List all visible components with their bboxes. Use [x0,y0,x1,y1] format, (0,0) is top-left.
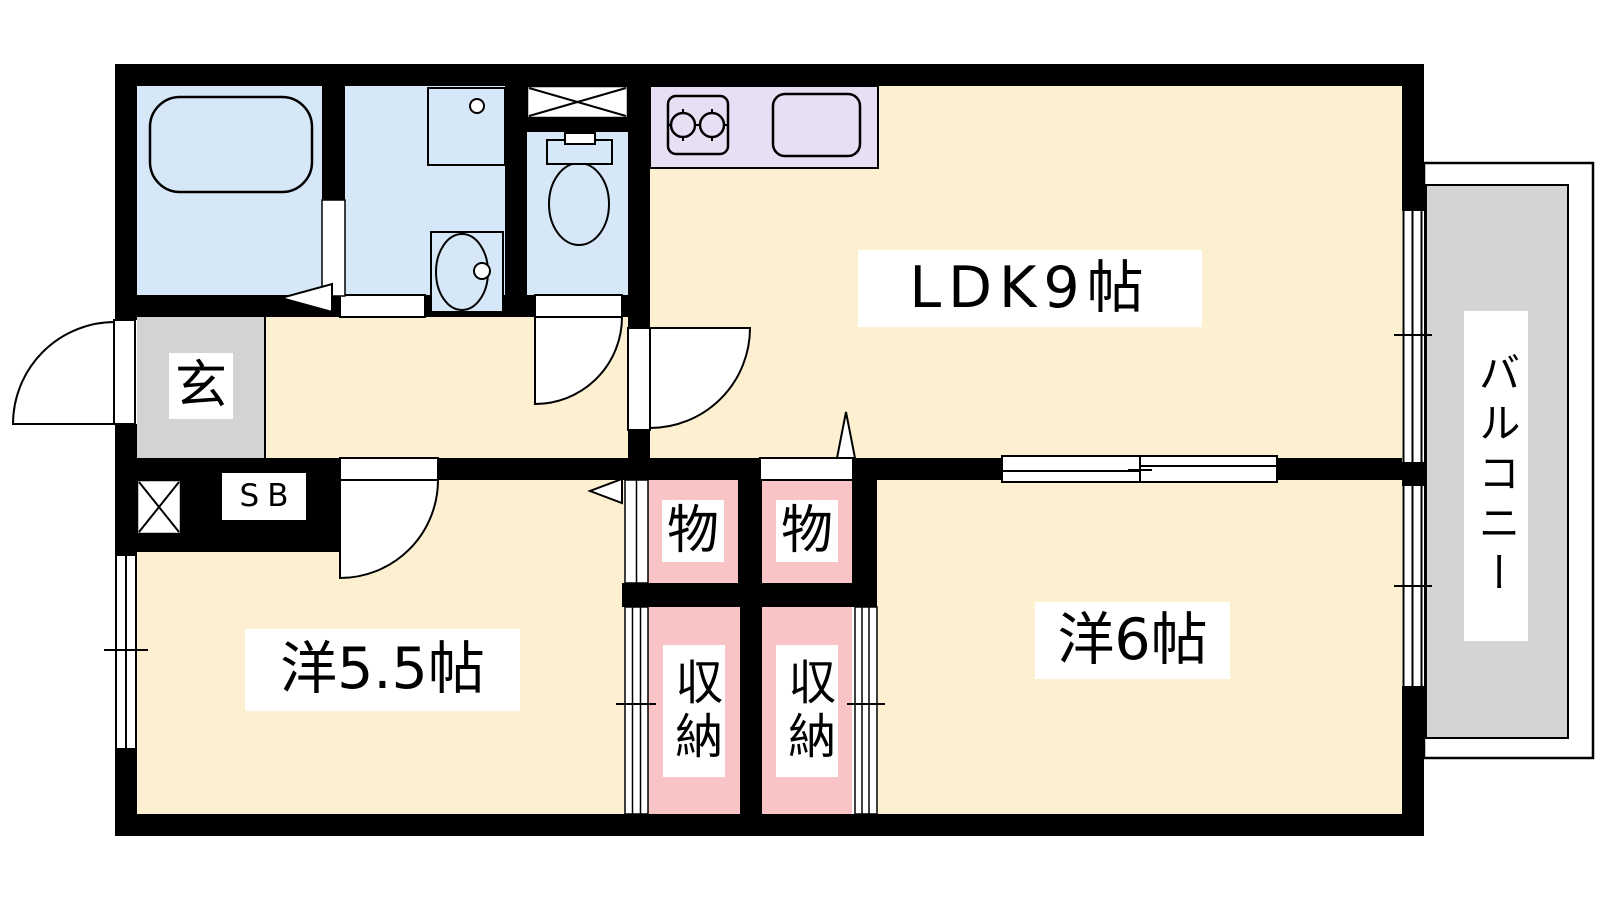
floor-plan: LDK9帖 洋5.5帖 洋6帖 玄 SB 物 物 収納 収納 バルコニー [0,0,1600,900]
label-closet-2: 収納 [776,645,838,777]
label-storage-1: 物 [662,500,724,562]
vanity-basin [431,232,503,312]
room-label-bedroom-small: 洋5.5帖 [245,629,520,711]
label-closet-1: 収納 [663,645,725,777]
washroom-doorway [340,295,425,317]
washing-machine-pan-cross-box [527,86,628,118]
toilet [547,133,612,245]
room-label-bedroom-large: 洋6帖 [1035,602,1230,679]
room-label-entrance: 玄 [169,353,233,419]
ldk-bedroom-partition-window [1002,456,1277,482]
label-shoe-box: SB [222,473,306,520]
front-door [13,320,135,424]
label-storage-2: 物 [776,500,838,562]
entrance-cross-box [137,480,181,534]
bathtub [150,97,312,192]
room-label-ldk: LDK9帖 [858,250,1202,327]
label-balcony: バルコニー [1464,311,1528,641]
